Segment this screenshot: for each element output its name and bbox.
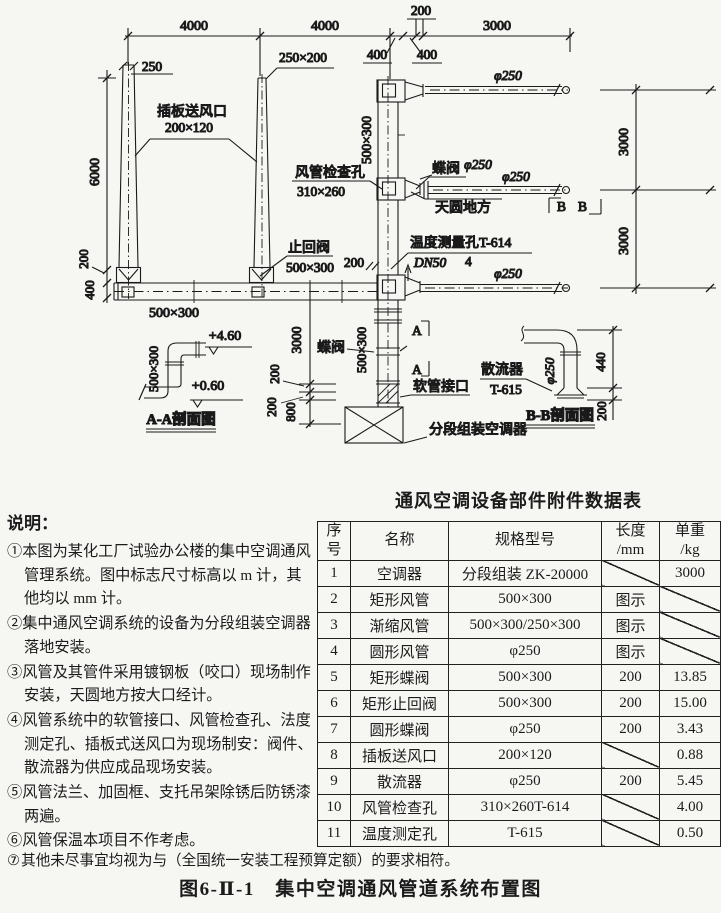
dim-phi250-b3: φ250: [494, 266, 522, 281]
table-row: 5矩形蝶阀500×30020013.85: [318, 664, 721, 690]
dim-200-bl-a: 200: [267, 364, 282, 384]
note-bullet: ①: [7, 543, 22, 560]
note-bullet: ④: [7, 712, 22, 729]
temp-hole-qty: 4: [465, 254, 472, 269]
note-text: 集中通风空调系统的设备为分段组装空调器落地安装。: [22, 615, 311, 656]
branch-duct-3: φ250: [420, 266, 570, 294]
dim-250x200: 250×200: [279, 50, 327, 65]
dim-200-top: 200: [411, 3, 432, 18]
note-bullet: ⑤: [7, 784, 22, 801]
page: { "drawing": { "dims": { "top_4000a": "4…: [0, 0, 721, 913]
note-item-5: ⑤风管法兰、加固框、支托吊架除锈后防锈漆两遍。: [7, 781, 313, 828]
note-bullet: ⑥: [7, 832, 22, 849]
notes-title: 说明：: [7, 509, 313, 534]
cone-transition-name: 天圆地方: [435, 200, 491, 216]
table-row: 11温度测定孔T-6150.50: [318, 820, 721, 846]
diffuser-model: T-615: [490, 382, 522, 397]
temp-hole-name: 温度测量孔T-614: [410, 235, 512, 250]
table-title: 通风空调设备部件附件数据表: [317, 487, 720, 513]
table-row: 1空调器分段组装 ZK-200003000: [318, 560, 721, 586]
duct-size-label: 500×300: [149, 306, 199, 321]
section-letter-a1: A: [412, 323, 422, 338]
slide-outlet-name: 插板送风口: [157, 104, 227, 120]
note-text: 风管及其管件采用镀钢板（咬口）现场制作安装，天圆地方按大口经计。: [22, 664, 311, 705]
dim-valve-200: 200: [344, 255, 365, 270]
bb-title: B-B剖面图: [526, 406, 594, 424]
left-dimension-line: 6000 200 400: [76, 70, 116, 303]
table-row: 7圆形蝶阀φ2502003.43: [318, 716, 721, 742]
note-item-4: ④风管系统中的软管接口、风管检查孔、法度测定孔、插板式送风口为现场制安：阀件、散…: [7, 709, 313, 780]
horizontal-duct: 500×300: [114, 280, 377, 321]
table-row: 3渐缩风管500×300/250×300图示: [318, 612, 721, 638]
table-row: 2矩形风管500×300图示: [318, 586, 721, 612]
level-mark-top: [209, 347, 218, 354]
dim-440: 440: [593, 352, 608, 372]
riser-duct-1: 250: [117, 59, 174, 299]
temp-hole-dn50: DN50: [413, 255, 447, 270]
note-item-7: ⑦其他未尽事宜均视为与（全国统一安装工程预算定额）的要求相符。: [7, 849, 719, 870]
dim-400-left: 400: [82, 280, 97, 300]
section-letter-b2: B: [578, 199, 587, 214]
dim-3000-top: 3000: [483, 19, 511, 34]
diffuser-name: 散流器: [481, 362, 523, 378]
section-mark-a: A A: [412, 321, 429, 377]
dim-4000-b: 4000: [311, 19, 339, 34]
table-row: 4圆形风管φ250图示: [318, 638, 721, 664]
note-item-3: ③风管及其管件采用镀钢板（咬口）现场制作安装，天圆地方按大口经计。: [7, 661, 313, 708]
col-header-spec: 规格型号: [449, 522, 602, 561]
note-bullet: ⑦: [7, 853, 20, 869]
dim-800-bl: 800: [283, 402, 298, 422]
inspection-hole-label: 风管检查孔 310×260: [292, 165, 382, 199]
note-text: 风管法兰、加固框、支托吊架除锈后防锈漆两遍。: [22, 784, 311, 825]
section-mark-b: B B: [549, 198, 601, 214]
riser-lower-size: 500×300: [354, 327, 369, 373]
butterfly-valve-label-top: 蝶阀 φ250: [416, 157, 492, 189]
dim-200-bb: 200: [594, 401, 609, 421]
dim-3000-bl: 3000: [289, 326, 304, 353]
riser-size-label: 500×300: [359, 116, 374, 164]
elev-bot-label: +0.60: [192, 379, 224, 394]
dim-250: 250: [142, 59, 163, 74]
cone-transition-1: [405, 82, 423, 100]
dim-phi250-b2: φ250: [502, 169, 530, 184]
dim-3000-right-a: 3000: [617, 128, 632, 156]
note-text: 风管系统中的软管接口、风管检查孔、法度测定孔、插板式送风口为现场制安：阀件、散流…: [22, 712, 312, 776]
butterfly-valve-label-bottom: 蝶阀 500×300: [317, 327, 374, 373]
butterfly-valve-name: 蝶阀: [432, 161, 460, 177]
note-item-1: ①本图为某化工厂试验办公楼的集中空调通风管理系统。图中标志尺寸标高以 m 计，其…: [7, 540, 313, 611]
table-row: 8插板送风口200×1200.88: [318, 742, 721, 768]
inspection-square-top: [383, 84, 396, 97]
butterfly-valve-bottom-name: 蝶阀: [317, 340, 345, 356]
col-header-length: 长度/mm: [602, 522, 660, 561]
inspection-square-mid: [383, 182, 396, 195]
col-header-no: 序号: [318, 522, 351, 561]
note-bullet: ③: [7, 664, 22, 681]
flexible-connector-label: 软管接口: [400, 378, 470, 397]
dim-6000: 6000: [88, 158, 103, 186]
check-valve-name: 止回阀: [288, 240, 330, 256]
air-handling-unit: 分段组装空调器: [345, 407, 527, 443]
flexible-connector-name: 软管接口: [413, 378, 469, 395]
figure-caption: 图6-Ⅱ-1 集中空调通风管道系统布置图: [0, 874, 721, 901]
cone-transition-label: 天圆地方: [411, 192, 502, 216]
diffuser-outline: [554, 388, 587, 398]
inspection-hole-name: 风管检查孔: [295, 165, 365, 181]
right-dimension-line: 3000 3000: [600, 84, 716, 294]
table-row: 6矩形止回阀500×30020015.00: [318, 690, 721, 716]
bb-section-detail: φ250 440 200 散流器 T-615 B-B剖面图: [480, 326, 622, 428]
inspection-hole-size: 310×260: [297, 184, 345, 199]
bb-phi250: φ250: [542, 357, 557, 384]
dim-400-b: 400: [417, 47, 438, 62]
aa-section-detail: +4.60 +0.60 500×300 A-A剖面图: [139, 329, 252, 432]
dim-3000-right-b: 3000: [617, 227, 632, 255]
branch-duct-1: φ250: [425, 68, 570, 96]
slide-outlet-size: 200×120: [165, 120, 213, 135]
note-bullet: ②: [7, 615, 22, 632]
dim-phi250-b1: φ250: [494, 68, 522, 83]
note-text: 风管保温本项目不作考虑。: [22, 832, 204, 849]
flexible-connector-hatch: [378, 384, 398, 403]
duct-access-square-1: [122, 287, 134, 297]
check-valve-label: 止回阀 500×300 200: [260, 240, 379, 276]
table-row: 9散流器φ2502005.45: [318, 768, 721, 794]
system-layout-drawing: 4000 4000 3000 200 400 400 6000 200 400 …: [0, 0, 721, 490]
level-mark-bot: [193, 400, 202, 407]
inspection-square-bot: [383, 280, 396, 293]
note-text: 其他未尽事宜均视为与（全国统一安装工程预算定额）的要求相符。: [21, 853, 459, 869]
bottom-left-dimension: 3000 200 200 800: [264, 284, 341, 428]
parts-table: 序号 名称 规格型号 长度/mm 单重/kg 1空调器分段组装 ZK-20000…: [317, 521, 721, 847]
ahu-label: 分段组装空调器: [429, 422, 527, 438]
section-letter-a2: A: [412, 362, 422, 377]
note-item-2: ②集中通风空调系统的设备为分段组装空调器落地安装。: [7, 612, 313, 659]
dim-400-a: 400: [367, 47, 388, 62]
cone-transition-3: [405, 277, 420, 296]
elev-top-label: +4.60: [209, 329, 241, 344]
col-header-weight: 单重/kg: [660, 522, 721, 561]
aa-duct-size: 500×300: [146, 346, 161, 392]
dim-4000-a: 4000: [180, 19, 208, 34]
table-header-row: 序号 名称 规格型号 长度/mm 单重/kg: [318, 522, 721, 561]
note-text: 本图为某化工厂试验办公楼的集中空调通风管理系统。图中标志尺寸标高以 m 计，其他…: [22, 543, 311, 607]
check-valve-size: 500×300: [286, 260, 334, 275]
table-row: 10风管检查孔310×260T-6144.00: [318, 794, 721, 820]
section-letter-b1: B: [557, 199, 566, 214]
dim-200-left: 200: [76, 249, 91, 269]
aa-title: A-A剖面图: [146, 410, 215, 428]
slide-outlet-label: 插板送风口 200×120: [135, 104, 257, 162]
dim-200-bl-b: 200: [264, 397, 279, 417]
butterfly-valve-phi: φ250: [464, 157, 492, 172]
col-header-name: 名称: [351, 522, 449, 561]
butterfly-valve-symbol: [376, 346, 407, 355]
notes-section: 说明： ①本图为某化工厂试验办公楼的集中空调通风管理系统。图中标志尺寸标高以 m…: [7, 509, 313, 854]
